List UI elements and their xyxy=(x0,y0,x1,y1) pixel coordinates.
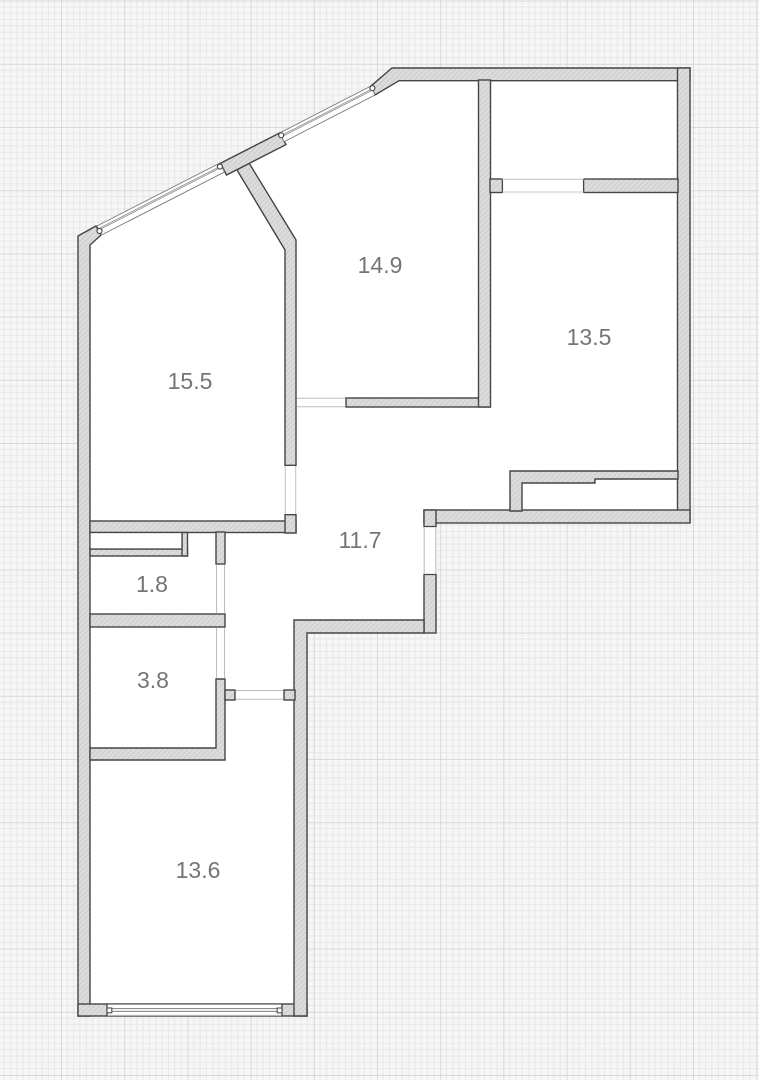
svg-text:14.9: 14.9 xyxy=(358,252,403,278)
svg-text:1.8: 1.8 xyxy=(136,571,168,597)
svg-text:3.8: 3.8 xyxy=(137,667,169,693)
svg-text:13.6: 13.6 xyxy=(176,857,221,883)
svg-text:13.5: 13.5 xyxy=(567,324,612,350)
svg-text:15.5: 15.5 xyxy=(168,368,213,394)
svg-text:11.7: 11.7 xyxy=(338,527,381,553)
